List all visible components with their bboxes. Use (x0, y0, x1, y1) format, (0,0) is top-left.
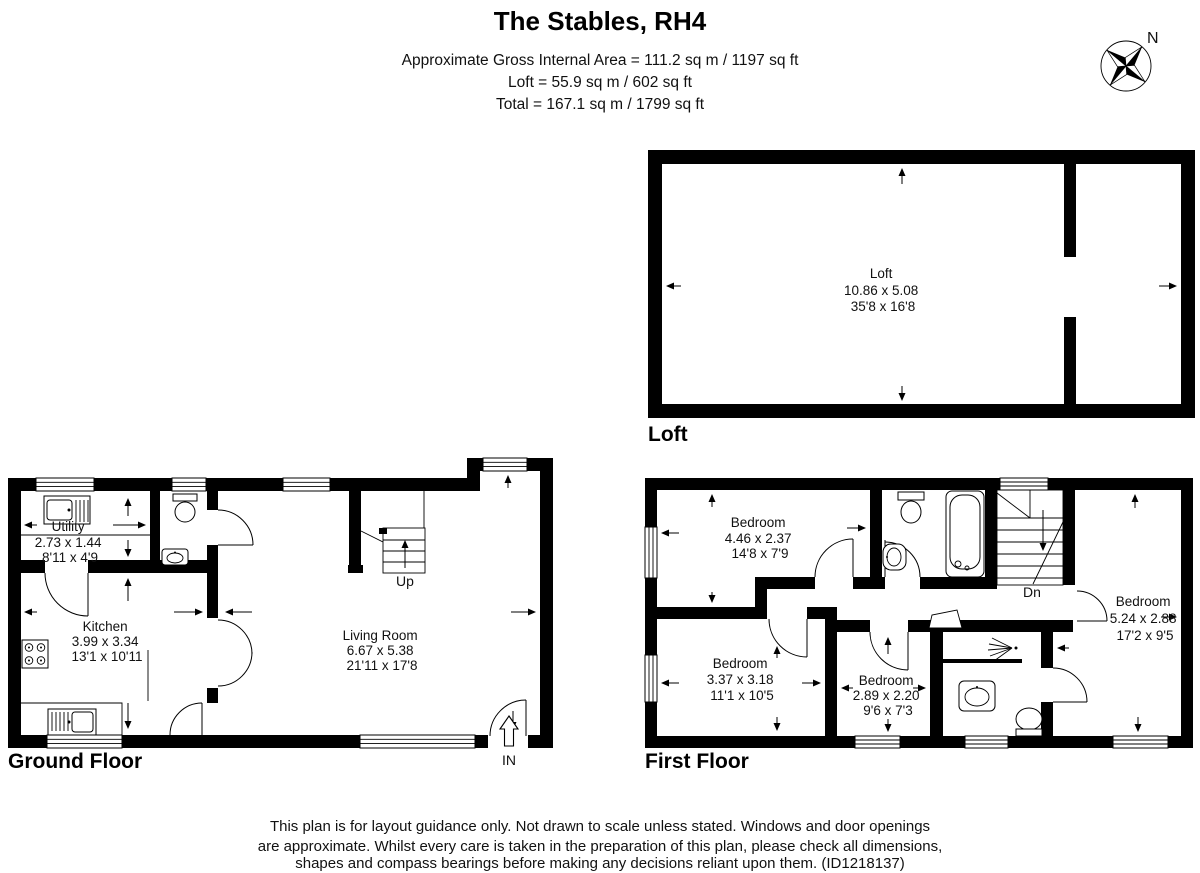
wc-toilet-icon (173, 494, 197, 522)
disclaimer-line-2: are approximate. Whilst every care is ta… (258, 838, 943, 855)
floorplan-page: The Stables, RH4 Approximate Gross Inter… (0, 0, 1200, 873)
loft-floor-label: Loft (648, 423, 688, 446)
window (965, 736, 1008, 748)
first-floor-plan: Bedroom 4.46 x 2.37 14'8 x 7'9 Bedroom 3… (645, 478, 1193, 748)
ground-floor-plan: IN Utility 2.73 x 1.44 8'11 x 4'9 Kitche… (8, 458, 553, 768)
wc-basin-icon (162, 549, 188, 565)
bathtub-icon (946, 491, 984, 577)
window (172, 478, 206, 491)
area-line-3: Total = 167.1 sq m / 1799 sq ft (496, 96, 705, 113)
floorplan-canvas: The Stables, RH4 Approximate Gross Inter… (0, 0, 1200, 873)
room-label-bedroom-4: Bedroom 5.24 x 2.88 17'2 x 9'5 (1110, 594, 1181, 643)
room-label-kitchen: Kitchen 3.99 x 3.34 13'1 x 10'11 (72, 619, 143, 664)
disclaimer-line-1: This plan is for layout guidance only. N… (270, 818, 930, 835)
room-label-bedroom-3: Bedroom 2.89 x 2.20 9'6 x 7'3 (853, 673, 924, 718)
bathroom-basin-icon (883, 544, 906, 570)
window (855, 736, 900, 748)
compass-rose-icon: N (1091, 30, 1161, 101)
ground-fixtures (21, 494, 197, 735)
window (645, 527, 657, 578)
first-floor-label: First Floor (645, 750, 749, 773)
kitchen-hob-icon (22, 640, 48, 668)
entrance-label: IN (502, 752, 516, 768)
area-line-1: Approximate Gross Internal Area = 111.2 … (402, 52, 799, 69)
shower-room-toilet-icon (1016, 708, 1042, 736)
header: The Stables, RH4 Approximate Gross Inter… (402, 6, 799, 113)
shower-icon (988, 638, 1018, 661)
area-line-2: Loft = 55.9 sq m / 602 sq ft (508, 74, 693, 91)
window (360, 735, 475, 748)
loft-plan: Loft 10.86 x 5.08 35'8 x 16'8 (648, 150, 1195, 418)
ground-dimension-arrows (25, 476, 535, 729)
entrance-marker: IN (500, 716, 518, 768)
window (283, 478, 330, 491)
disclaimer: This plan is for layout guidance only. N… (258, 818, 943, 872)
disclaimer-line-3: shapes and compass bearings before makin… (295, 855, 905, 872)
compass-north-label: N (1147, 30, 1159, 47)
room-label-bedroom-1: Bedroom 4.46 x 2.37 14'8 x 7'9 (725, 515, 796, 561)
window (36, 478, 94, 491)
stairs-up-label: Up (396, 573, 414, 589)
entrance-arrow-icon (500, 716, 518, 746)
stairs-down-label: Dn (1023, 584, 1041, 600)
room-label-bedroom-2: Bedroom 3.37 x 3.18 11'1 x 10'5 (707, 656, 778, 703)
shower-room-basin-icon (959, 681, 995, 711)
ground-floor-label: Ground Floor (8, 750, 142, 773)
window (483, 458, 527, 471)
kitchen-sink-icon (48, 709, 96, 735)
ground-stairs (361, 490, 425, 573)
window (1000, 478, 1048, 490)
room-label-living-room: Living Room 6.67 x 5.38 21'11 x 17'8 (343, 628, 422, 673)
window (1113, 736, 1168, 748)
window (47, 735, 122, 748)
ground-windows (36, 458, 527, 748)
room-label-loft: Loft 10.86 x 5.08 35'8 x 16'8 (844, 266, 922, 314)
room-label-utility: Utility 2.73 x 1.44 8'11 x 4'9 (35, 519, 106, 565)
page-title: The Stables, RH4 (494, 6, 707, 36)
window (645, 655, 657, 702)
bathroom-toilet-icon (898, 492, 924, 523)
first-stairs (997, 490, 1063, 585)
